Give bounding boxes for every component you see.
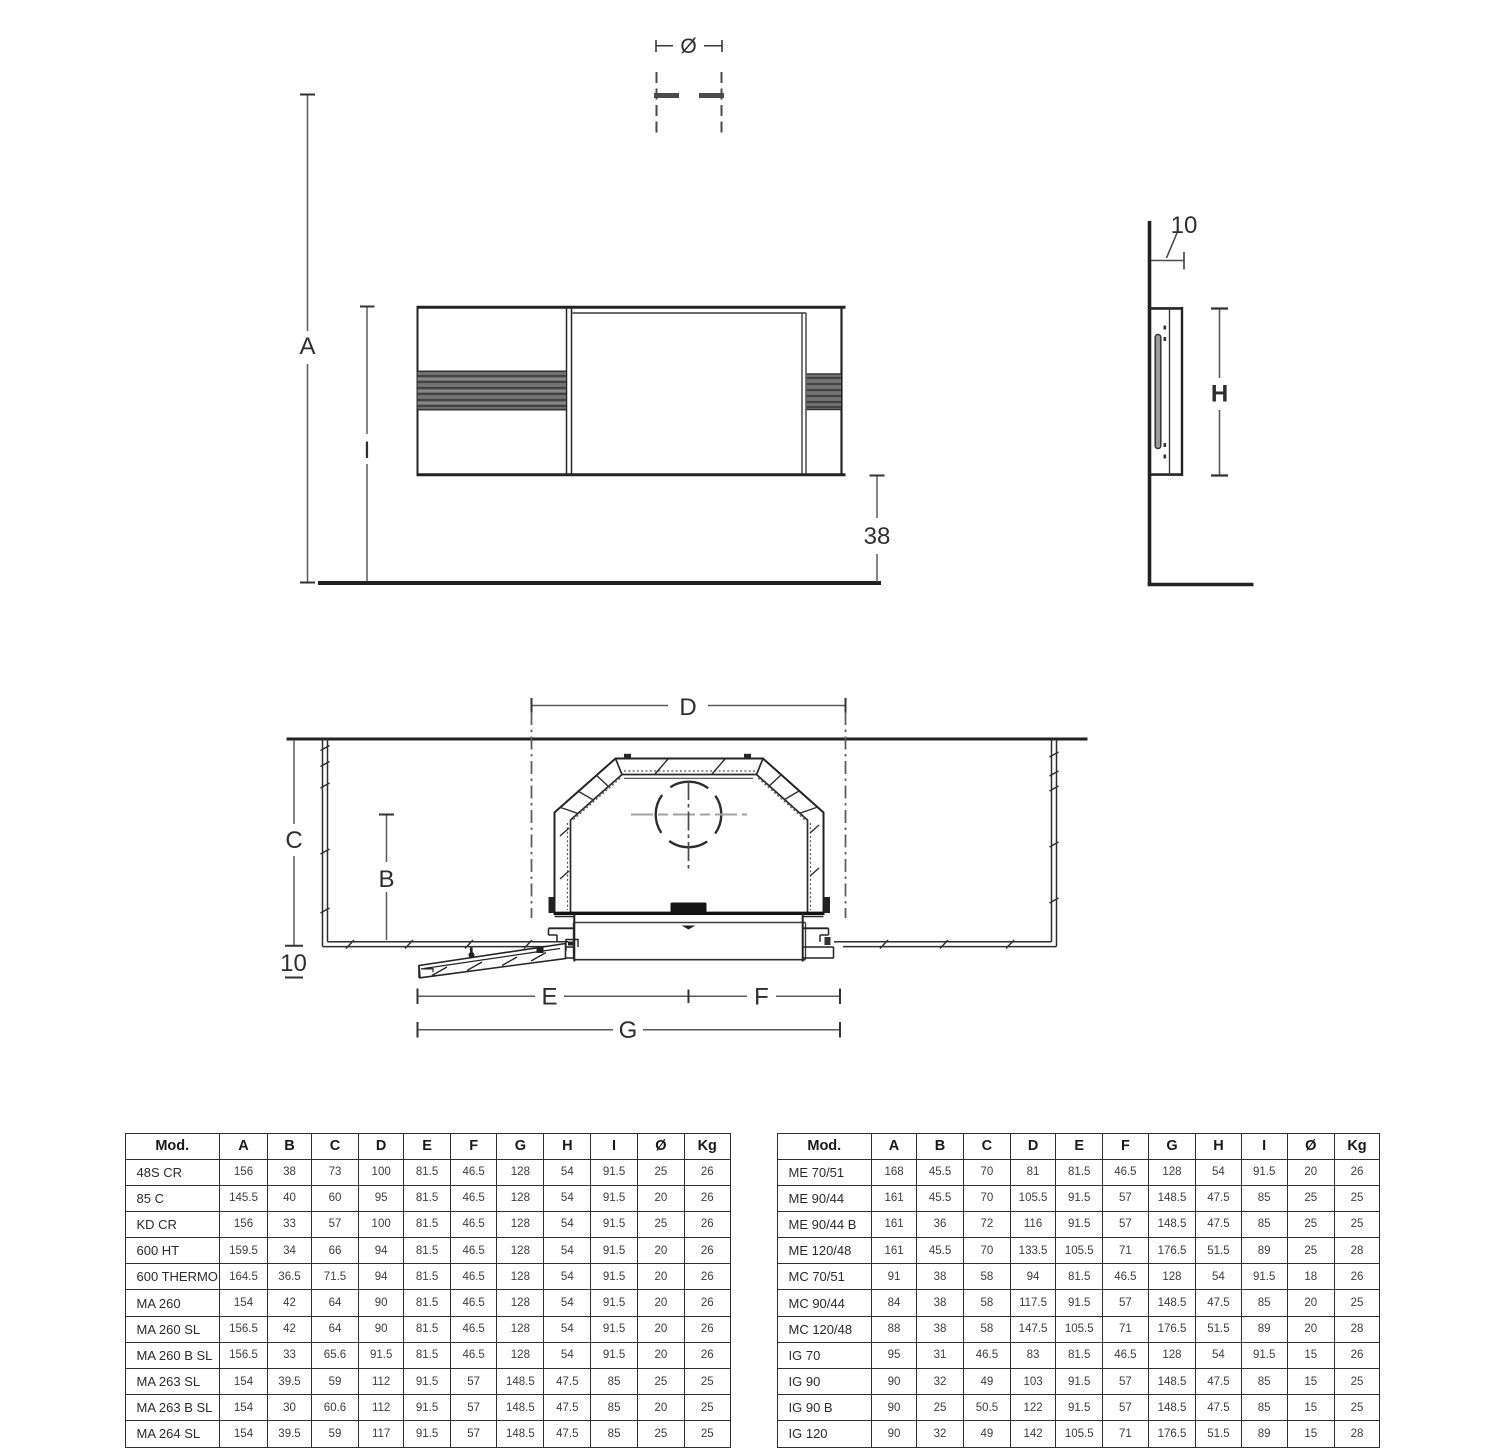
svg-text:F: F — [754, 984, 769, 1011]
svg-text:10: 10 — [280, 950, 307, 977]
svg-text:I: I — [364, 437, 371, 464]
svg-text:G: G — [619, 1017, 638, 1044]
svg-text:C: C — [285, 827, 302, 854]
svg-text:B: B — [378, 866, 394, 893]
svg-text:D: D — [679, 694, 696, 721]
svg-text:38: 38 — [864, 523, 891, 550]
svg-text:10: 10 — [1171, 212, 1198, 239]
svg-text:E: E — [541, 984, 557, 1011]
svg-text:H: H — [1211, 381, 1228, 408]
svg-text:Ø: Ø — [680, 35, 696, 58]
svg-text:A: A — [299, 333, 315, 360]
